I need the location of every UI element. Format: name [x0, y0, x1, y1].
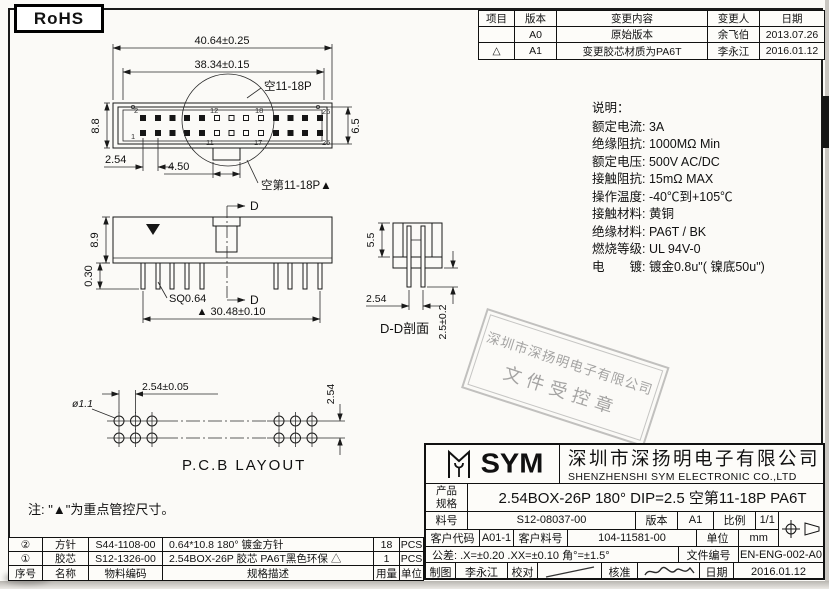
svg-text:40.64±0.25: 40.64±0.25 — [195, 35, 250, 47]
bom-header-code: 物料编码 — [89, 566, 163, 580]
scale-value: 1/1 — [756, 512, 779, 529]
title-block: SYM 深圳市深扬明电子有限公司 SHENZHENSHI SYM ELECTRO… — [424, 443, 825, 580]
pcb-layout-view: ø1.1 2.54±0.05 2.54 P.C.B LAYOUT — [72, 381, 345, 474]
approved-by-label: 核准 — [602, 563, 638, 580]
sym-logo-text: SYM — [481, 448, 544, 479]
section-cut-line: D D — [227, 199, 259, 307]
tolerance-text: 公差: .X=±0.20 .XX=±0.10 角°=±1.5° — [426, 547, 679, 562]
svg-text:2.5±0.2: 2.5±0.2 — [437, 304, 449, 339]
pcb-holes — [114, 412, 317, 447]
svg-text:D: D — [250, 293, 259, 307]
svg-text:2.54±0.05: 2.54±0.05 — [142, 381, 189, 393]
projection-symbol — [779, 512, 823, 546]
dim-notch: 4.50 — [164, 161, 240, 178]
svg-text:2: 2 — [134, 106, 138, 115]
svg-text:6.5: 6.5 — [350, 118, 362, 133]
svg-text:1: 1 — [131, 132, 135, 141]
bom-row-name: 方针 — [43, 538, 89, 552]
unit-value: mm — [739, 530, 779, 548]
drawn-by-value: 李永江 — [456, 563, 508, 580]
svg-text:5.5: 5.5 — [365, 233, 377, 248]
date-value: 2016.01.12 — [734, 563, 823, 580]
company-logo: SYM — [426, 445, 560, 483]
svg-text:SQ0.64: SQ0.64 — [169, 293, 206, 305]
svg-text:2.54: 2.54 — [325, 384, 337, 405]
unit-label: 单位 — [697, 530, 739, 548]
section-view: 5.5 2.54 2.5±0.2 D-D剖面 — [365, 223, 458, 339]
dim-front-height: 8.9 — [89, 217, 110, 263]
dim-pitch: 2.54 — [104, 138, 174, 171]
part-no-value: S12-08037-00 — [468, 512, 636, 529]
customer-part-label: 客户料号 — [514, 530, 568, 548]
dim-pcb-row-pitch: 2.54 — [325, 384, 340, 455]
bom-header-qty: 用量 — [374, 566, 400, 580]
bom-row-code: S12-1326-00 — [89, 552, 163, 566]
svg-text:D: D — [250, 199, 259, 213]
product-spec-value: 2.54BOX-26P 180° DIP=2.5 空第11-18P PA6T — [468, 484, 823, 511]
company-name-cn: 深圳市深扬明电子有限公司 — [568, 445, 820, 471]
svg-text:空第11-18P▲: 空第11-18P▲ — [261, 178, 332, 192]
svg-text:▲ 30.48±0.10: ▲ 30.48±0.10 — [197, 306, 266, 318]
svg-text:38.34±0.15: 38.34±0.15 — [195, 59, 250, 71]
svg-text:11: 11 — [206, 138, 214, 147]
pin-square-callout: SQ0.64 — [158, 282, 206, 305]
date-label: 日期 — [700, 563, 734, 580]
checked-by-label: 校对 — [508, 563, 538, 580]
doc-no-label: 文件编号 — [679, 547, 739, 562]
dim-section-pitch: 2.54 — [366, 290, 440, 310]
control-dimension-note: 注: "▲"为重点管控尺寸。 — [28, 499, 174, 518]
bom-row-unit: PCS — [400, 538, 423, 552]
front-view: D D 8.9 0.30 SQ0.64 ▲ 30.48±0.10 — [83, 199, 332, 323]
pin-row-bottom — [141, 131, 323, 136]
doc-no-value: EN-ENG-002-A0 — [739, 547, 823, 562]
bom-row-name: 胶芯 — [43, 552, 89, 566]
version-label: 版本 — [636, 512, 678, 529]
svg-text:12: 12 — [210, 106, 218, 115]
svg-text:17: 17 — [254, 138, 262, 147]
bom-row-no: ② — [9, 538, 43, 552]
approved-by-signature — [638, 563, 700, 580]
svg-text:18: 18 — [255, 106, 263, 115]
bom-table: ② 方针 S44-1108-00 0.64*10.8 180° 镀金方针 18 … — [8, 537, 424, 581]
svg-text:4.50: 4.50 — [168, 161, 189, 173]
bom-row-unit: PCS — [400, 552, 423, 566]
part-no-label: 料号 — [426, 512, 468, 529]
vacant-pins-callout-bottom: 空第11-18P▲ — [247, 160, 332, 192]
drawn-by-label: 制图 — [426, 563, 456, 580]
dim-inner-width: 38.34±0.15 — [123, 59, 324, 100]
version-value: A1 — [678, 512, 714, 529]
bom-row-qty: 1 — [374, 552, 400, 566]
bom-row-no: ① — [9, 552, 43, 566]
company-name: 深圳市深扬明电子有限公司 SHENZHENSHI SYM ELECTRONIC … — [560, 445, 823, 483]
customer-code-value: A01-1 — [480, 530, 514, 548]
vacant-pins-callout-top: 空11-18P — [247, 79, 312, 98]
scale-label: 比例 — [714, 512, 756, 529]
svg-text:8.9: 8.9 — [89, 232, 101, 247]
top-view: 40.64±0.25 38.34±0.15 8.8 6.5 2.54 4 — [90, 35, 362, 192]
sym-logo-mark — [442, 447, 476, 481]
dim-pcb-pitch: 2.54±0.05 — [102, 381, 218, 413]
dim-standoff: 0.30 — [83, 263, 139, 289]
pcb-layout-label: P.C.B LAYOUT — [182, 457, 306, 474]
bom-header-desc: 规格描述 — [163, 566, 374, 580]
bom-row-desc: 0.64*10.8 180° 镀金方针 — [163, 538, 374, 552]
bom-row-qty: 18 — [374, 538, 400, 552]
bom-header-name: 名称 — [43, 566, 89, 580]
svg-text:26: 26 — [322, 107, 330, 116]
customer-code-label: 客户代码 — [426, 530, 480, 548]
bom-row-desc: 2.54BOX-26P 胶芯 PA6T黑色环保 △ — [163, 552, 374, 566]
bom-header-unit: 单位 — [400, 566, 423, 580]
dim-body-height: 8.8 — [90, 103, 110, 148]
svg-text:空11-18P: 空11-18P — [264, 79, 312, 93]
dim-cavity-depth: 5.5 — [365, 223, 390, 257]
svg-text:2.54: 2.54 — [366, 293, 387, 305]
section-view-label: D-D剖面 — [380, 321, 429, 336]
polarity-mark — [146, 224, 160, 235]
bom-header-no: 序号 — [9, 566, 43, 580]
svg-text:8.8: 8.8 — [90, 118, 102, 133]
svg-text:2.54: 2.54 — [105, 154, 126, 166]
company-name-en: SHENZHENSHI SYM ELECTRONIC CO.,LTD — [568, 471, 797, 483]
svg-text:ø1.1: ø1.1 — [72, 398, 93, 410]
bom-row-code: S44-1108-00 — [89, 538, 163, 552]
svg-text:0.30: 0.30 — [83, 265, 95, 286]
dim-hole-dia: ø1.1 — [72, 398, 115, 418]
svg-text:25: 25 — [322, 138, 330, 147]
product-spec-label: 产品 规格 — [426, 484, 468, 511]
leads — [141, 263, 322, 289]
pin-row-top — [141, 116, 323, 121]
customer-part-value: 104-11581-00 — [568, 530, 697, 548]
checked-by-signature — [538, 563, 602, 580]
